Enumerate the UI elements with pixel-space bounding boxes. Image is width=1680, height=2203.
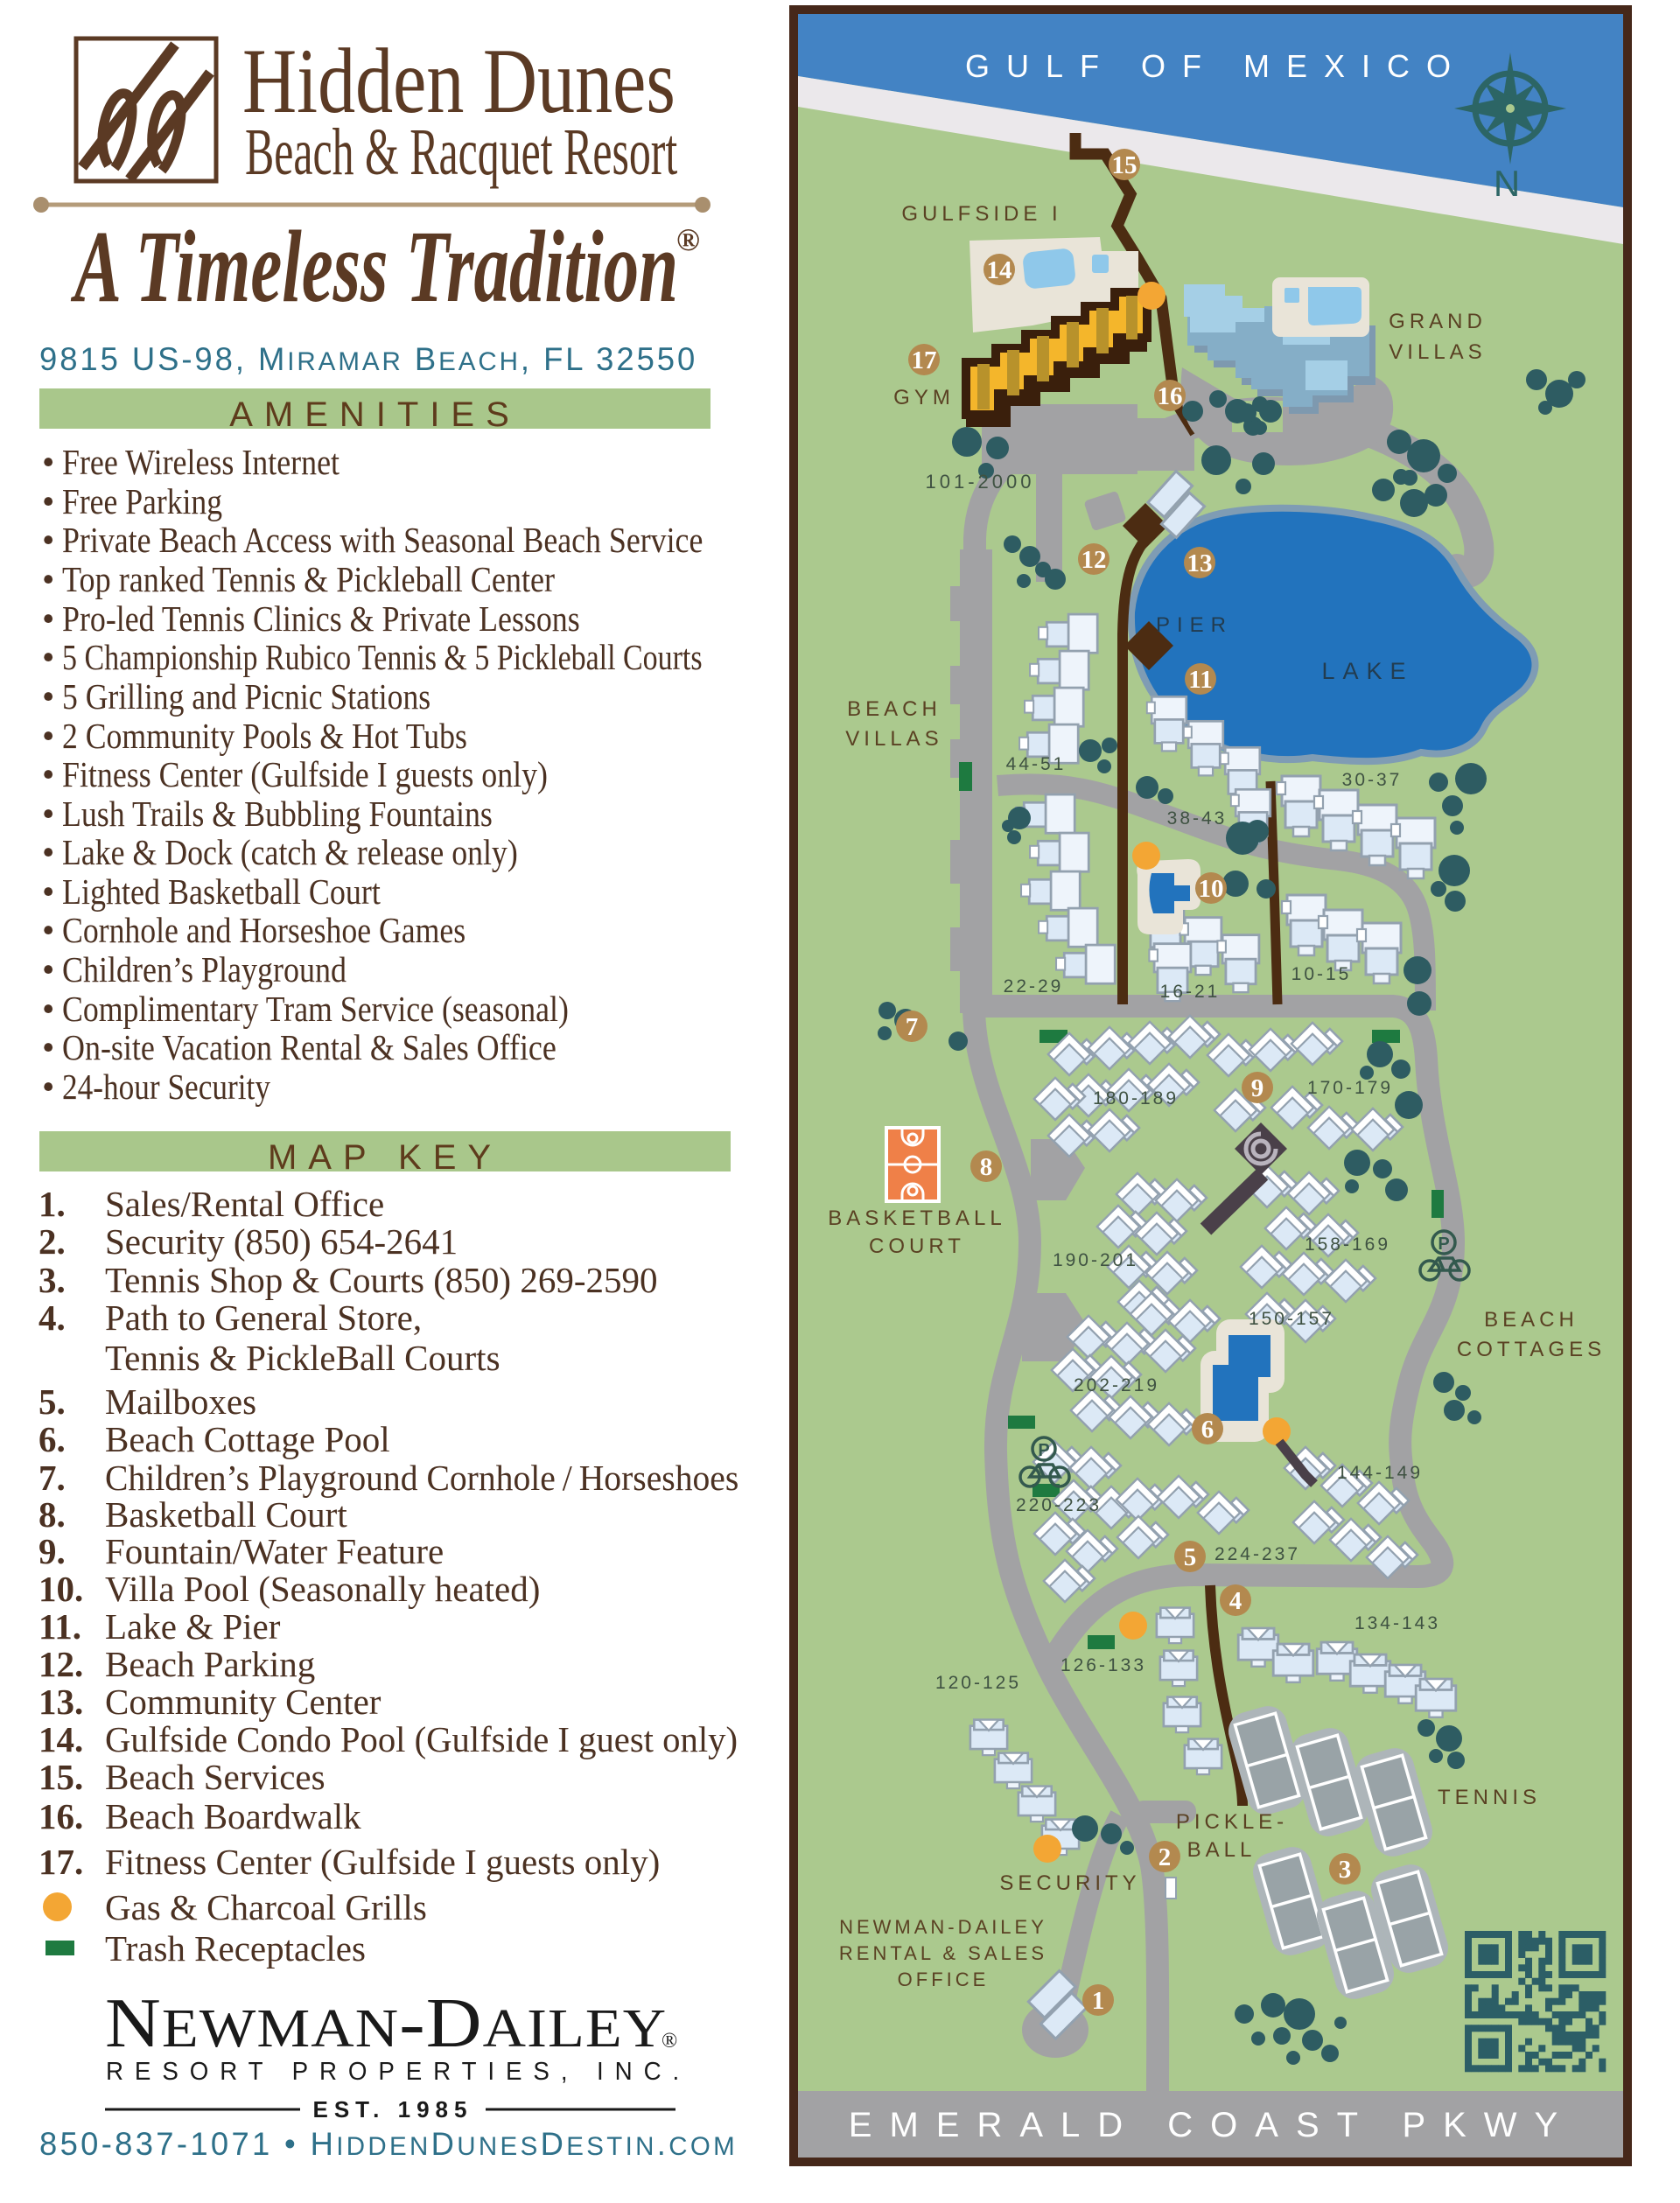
svg-text:13: 13 [1187, 549, 1213, 577]
svg-text:TENNIS: TENNIS [1438, 1786, 1541, 1809]
svg-text:9: 9 [1251, 1074, 1264, 1102]
svg-text:14: 14 [987, 256, 1012, 284]
svg-text:GULFSIDE I: GULFSIDE I [901, 202, 1061, 226]
svg-text:LAKE: LAKE [1321, 658, 1413, 684]
svg-text:11: 11 [1188, 666, 1212, 694]
svg-text:17: 17 [912, 346, 937, 374]
svg-text:BEACH: BEACH [1484, 1308, 1578, 1332]
svg-text:RENTAL & SALES: RENTAL & SALES [839, 1942, 1047, 1964]
svg-text:BASKETBALL: BASKETBALL [828, 1206, 1005, 1230]
svg-text:170-179: 170-179 [1307, 1078, 1393, 1098]
svg-text:7: 7 [906, 1013, 919, 1041]
svg-text:P: P [1438, 1234, 1449, 1254]
svg-text:10-15: 10-15 [1291, 964, 1352, 984]
svg-text:OFFICE: OFFICE [898, 1969, 990, 1990]
svg-text:10: 10 [1199, 875, 1224, 903]
svg-text:16-21: 16-21 [1160, 982, 1221, 1002]
svg-text:126-133: 126-133 [1060, 1655, 1146, 1675]
svg-text:PIER: PIER [1156, 613, 1233, 637]
svg-text:158-169: 158-169 [1305, 1234, 1390, 1255]
svg-text:220-223: 220-223 [1016, 1495, 1102, 1515]
svg-text:EMERALD COAST PKWY: EMERALD COAST PKWY [849, 2106, 1575, 2144]
svg-text:GRAND: GRAND [1389, 310, 1487, 333]
svg-text:BALL: BALL [1187, 1838, 1256, 1862]
svg-text:224-237: 224-237 [1214, 1544, 1300, 1564]
svg-text:PICKLE-: PICKLE- [1176, 1810, 1288, 1834]
svg-text:12: 12 [1081, 546, 1107, 574]
svg-text:N: N [1494, 163, 1520, 204]
svg-text:SECURITY: SECURITY [999, 1871, 1140, 1895]
svg-text:COURT: COURT [869, 1234, 965, 1258]
svg-text:180-189: 180-189 [1093, 1088, 1179, 1108]
svg-text:30-37: 30-37 [1342, 770, 1403, 790]
svg-text:144-149: 144-149 [1337, 1463, 1423, 1483]
svg-text:VILLAS: VILLAS [1389, 340, 1486, 364]
svg-text:134-143: 134-143 [1354, 1613, 1440, 1633]
svg-text:38-43: 38-43 [1167, 808, 1228, 829]
svg-text:NEWMAN-DAILEY: NEWMAN-DAILEY [839, 1916, 1047, 1938]
svg-text:22-29: 22-29 [1004, 976, 1064, 997]
svg-text:BEACH: BEACH [847, 697, 941, 721]
svg-text:GYM: GYM [893, 386, 955, 409]
svg-text:15: 15 [1112, 151, 1137, 179]
svg-text:P: P [1038, 1441, 1049, 1460]
svg-text:3: 3 [1339, 1856, 1352, 1884]
svg-text:8: 8 [980, 1153, 993, 1181]
svg-text:120-125: 120-125 [935, 1673, 1021, 1693]
svg-text:5: 5 [1184, 1543, 1197, 1571]
svg-text:GULF OF MEXICO: GULF OF MEXICO [965, 48, 1467, 84]
svg-text:VILLAS: VILLAS [845, 727, 942, 751]
svg-text:202-219: 202-219 [1074, 1375, 1159, 1395]
svg-text:1: 1 [1092, 1987, 1105, 2015]
svg-text:150-157: 150-157 [1249, 1309, 1334, 1329]
svg-text:44-51: 44-51 [1006, 754, 1067, 774]
svg-text:16: 16 [1158, 382, 1183, 410]
svg-text:4: 4 [1229, 1587, 1242, 1615]
svg-text:6: 6 [1201, 1416, 1214, 1444]
svg-text:190-201: 190-201 [1053, 1250, 1138, 1270]
svg-text:COTTAGES: COTTAGES [1457, 1338, 1606, 1361]
svg-text:2: 2 [1158, 1843, 1172, 1871]
svg-text:101-2000: 101-2000 [926, 471, 1035, 493]
